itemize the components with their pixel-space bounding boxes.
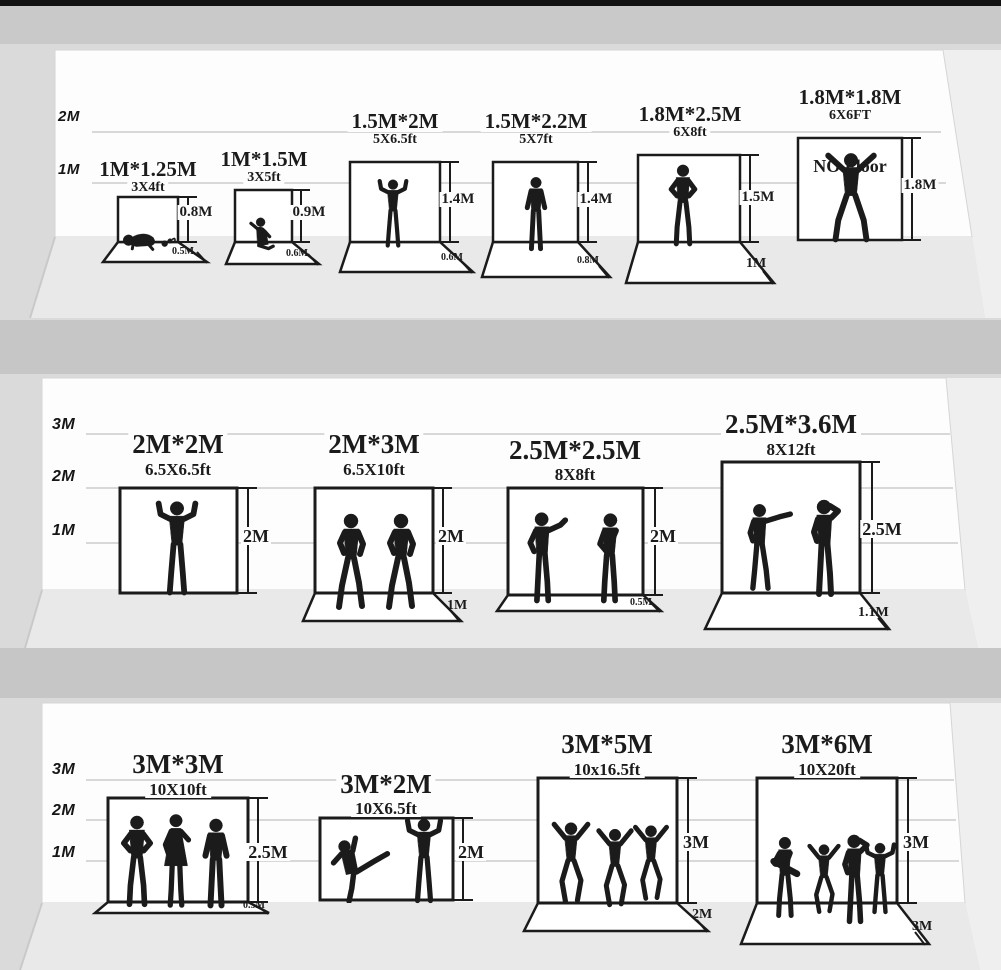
- backdrop-subtitle: 3X5ft: [243, 171, 284, 185]
- scene-graphics: [0, 0, 1001, 970]
- backdrop-title: 3M*3M: [128, 751, 227, 778]
- backdrop-subtitle: 10X10ft: [145, 781, 211, 798]
- height-label: 2M: [456, 843, 486, 861]
- shelf-band-middle: [0, 320, 1001, 374]
- backdrop-3m-2m: [320, 818, 473, 901]
- backdrop-frame: [315, 488, 433, 593]
- floor-depth-label: 1M: [746, 257, 766, 271]
- backdrop-title: 2.5M*3.6M: [721, 411, 861, 438]
- backdrop-title: 1M*1.25M: [95, 159, 200, 180]
- backdrop-subtitle: 3X4ft: [127, 181, 168, 195]
- height-label: 2M: [241, 527, 271, 545]
- floor-depth-label: 2M: [692, 908, 712, 922]
- height-label: 3M: [681, 833, 711, 851]
- floor-depth-label: 1M: [447, 599, 467, 613]
- backdrop-title: 1M*1.5M: [217, 149, 312, 170]
- backdrop-size-chart: 2M 1M 3M 2M 1M 3M 2M 1M 1M*1.25M 3X4ft 1…: [0, 0, 1001, 970]
- backdrop-subtitle: 6X6FT: [825, 109, 875, 123]
- floor-depth-label: 0.6M: [286, 249, 308, 259]
- backdrop-frame: [722, 462, 860, 593]
- backdrop-3m-3m: [95, 798, 269, 914]
- axis-label-2m: 2M: [52, 469, 75, 485]
- height-label: 1.4M: [578, 192, 615, 207]
- height-label: 2M: [436, 527, 466, 545]
- shelf-band-top: [0, 6, 1001, 44]
- backdrop-subtitle: 6X8ft: [669, 126, 710, 140]
- height-label: 1.4M: [440, 192, 477, 207]
- axis-label-1m: 1M: [58, 162, 80, 177]
- backdrop-subtitle: 10X6.5ft: [351, 800, 421, 817]
- backdrop-title: 2M*3M: [324, 431, 423, 458]
- backdrop-title: 1.5M*2.2M: [481, 111, 592, 132]
- backdrop-title: 2M*2M: [128, 431, 227, 458]
- backdrop-title: 1.5M*2M: [348, 111, 443, 132]
- height-label: 3M: [901, 833, 931, 851]
- backdrop-2.5m-2.5m: [497, 488, 663, 612]
- top-black-strip: [0, 0, 1001, 6]
- height-label: 2.5M: [246, 843, 290, 861]
- floor-depth-label: 0.6M: [441, 253, 463, 263]
- backdrop-floor: [741, 903, 929, 944]
- height-label: 1.8M: [902, 178, 939, 193]
- backdrop-subtitle: 5X6.5ft: [369, 133, 421, 147]
- backdrop-title: 1.8M*2.5M: [635, 104, 746, 125]
- floor-depth-label: 0.5M: [630, 598, 652, 608]
- height-label: 0.8M: [178, 205, 215, 220]
- backdrop-title: 3M*2M: [336, 771, 435, 798]
- axis-label-1m: 1M: [52, 523, 75, 539]
- height-label: 1.5M: [740, 190, 777, 205]
- axis-label-1m: 1M: [52, 845, 75, 861]
- no-floor-note: NO Floor: [813, 157, 887, 175]
- floor-depth-label: 0.5M: [243, 901, 265, 911]
- backdrop-title: 3M*5M: [557, 731, 656, 758]
- backdrop-subtitle: 10x16.5ft: [570, 761, 645, 778]
- axis-label-2m: 2M: [58, 109, 80, 124]
- backdrop-subtitle: 8X8ft: [551, 466, 600, 483]
- backdrop-title: 3M*6M: [777, 731, 876, 758]
- shelf-band-bottom: [0, 648, 1001, 698]
- height-label: 0.9M: [291, 205, 328, 220]
- backdrop-subtitle: 6.5X6.5ft: [141, 461, 215, 478]
- backdrop-subtitle: 10X20ft: [794, 761, 860, 778]
- backdrop-2m-2m: [120, 488, 257, 593]
- floor-depth-label: 0.5M: [172, 247, 194, 257]
- backdrop-subtitle: 8X12ft: [762, 441, 819, 458]
- backdrop-floor: [303, 593, 461, 621]
- backdrop-title: 2.5M*2.5M: [505, 437, 645, 464]
- floor-depth-label: 0.8M: [577, 256, 599, 266]
- axis-label-2m: 2M: [52, 803, 75, 819]
- height-label: 2.5M: [860, 520, 904, 538]
- height-label: 2M: [648, 527, 678, 545]
- backdrop-subtitle: 5X7ft: [515, 133, 556, 147]
- floor-depth-label: 3M: [912, 920, 932, 934]
- axis-label-3m: 3M: [52, 417, 75, 433]
- backdrop-floor: [524, 903, 708, 931]
- floor-depth-label: 1.1M: [858, 606, 889, 620]
- axis-label-3m: 3M: [52, 762, 75, 778]
- backdrop-title: 1.8M*1.8M: [795, 87, 906, 108]
- backdrop-subtitle: 6.5X10ft: [339, 461, 409, 478]
